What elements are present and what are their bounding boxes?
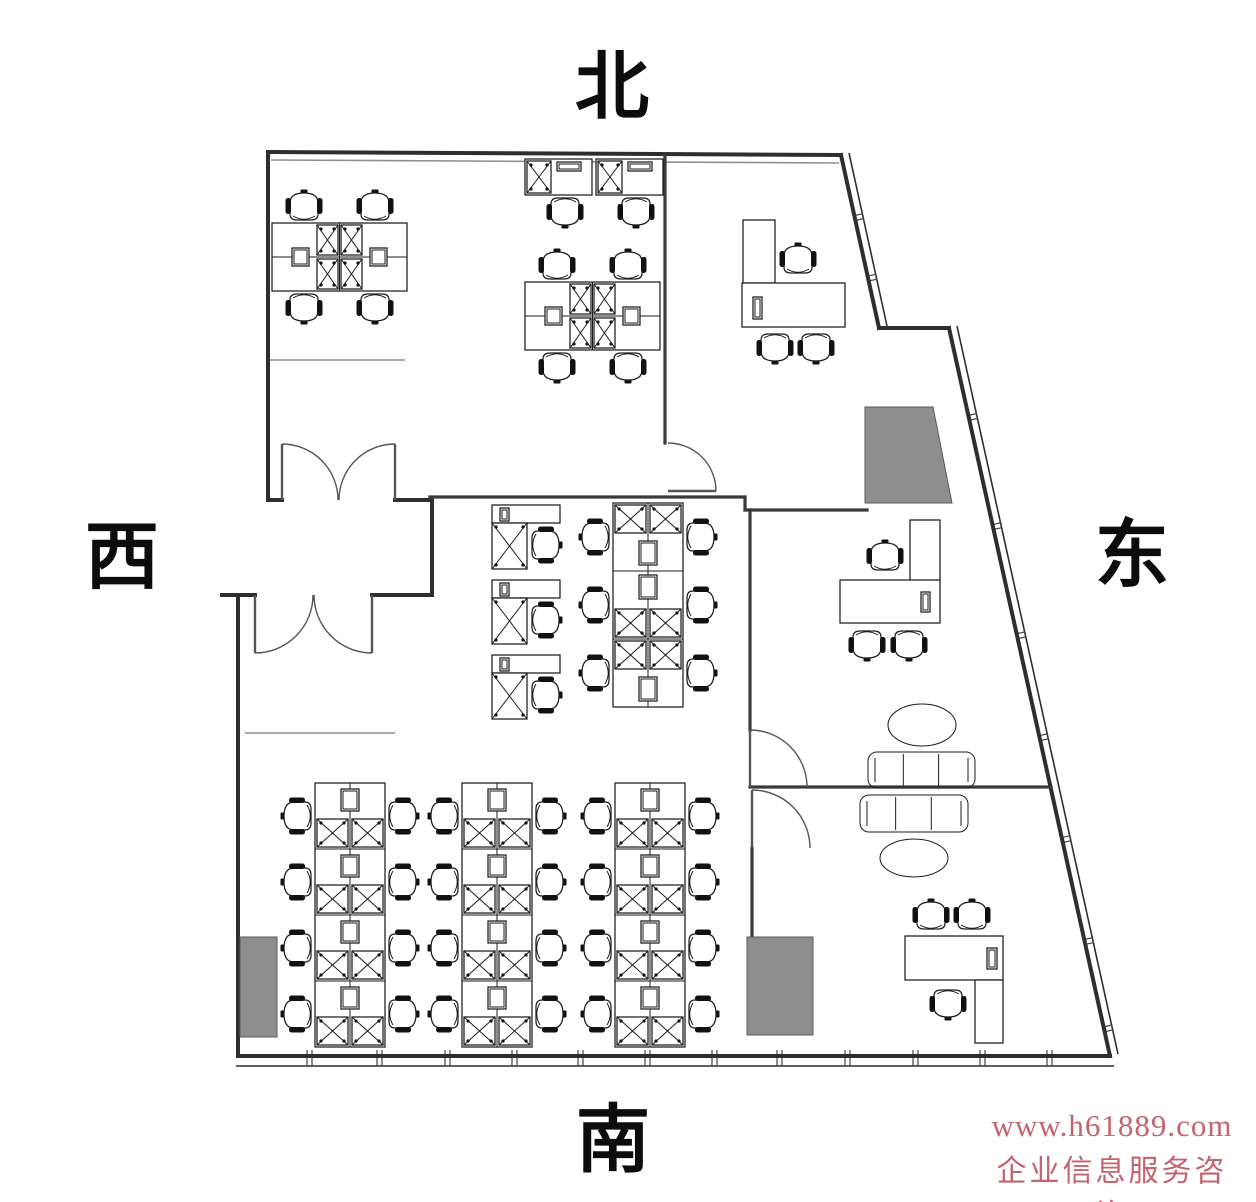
compass-north-label: 北 xyxy=(575,51,649,125)
floor-plan: 北 南 西 东 www.h61889.com 企业信息服务咨询 xyxy=(0,0,1256,1202)
floor-plan-canvas xyxy=(0,0,1256,1202)
watermark: www.h61889.com 企业信息服务咨询 xyxy=(991,1108,1232,1202)
watermark-url: www.h61889.com xyxy=(991,1108,1232,1144)
furniture-layer xyxy=(272,159,1003,1047)
watermark-caption: 企业信息服务咨询 xyxy=(991,1146,1232,1202)
compass-south-label: 南 xyxy=(576,1104,650,1178)
compass-west-label: 西 xyxy=(85,521,159,595)
compass-east-label: 东 xyxy=(1095,519,1169,593)
